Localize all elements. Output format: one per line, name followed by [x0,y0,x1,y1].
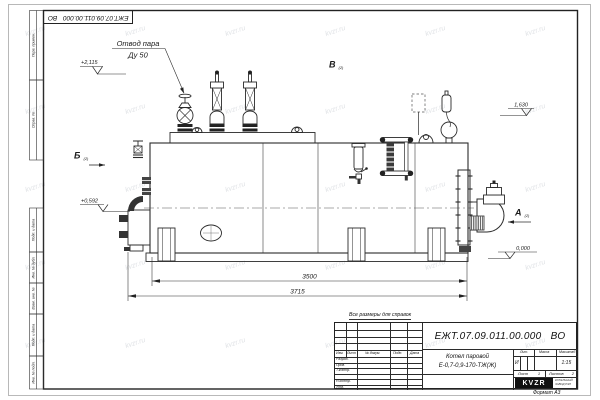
tb-col-list: Лист [347,352,356,356]
support-leg [348,228,365,261]
tb-product-line2: Е-0,7-0,9-170-ТЖ(Ж) [439,362,496,371]
support-skid [146,228,468,262]
margin-stamp-labels: Перв. примен. Справ. № Подп. и дата Инв.… [32,33,36,384]
drawing-sheet: kvzr.rukvzr.rukvzr.rukvzr.rukvzr.rukvzr.… [0,0,600,400]
tb-lbl-listov: Листов [549,371,564,376]
reference-note: Все размеры для справок [349,312,411,320]
lifting-lug [292,127,303,132]
lifting-lug [192,128,202,133]
safety-valve-2 [243,71,258,132]
view-arrow-b [89,163,105,167]
kvzr-logo-subtext: КОТЕЛЬНЫЙ ЗАВОД РЭП [555,379,578,386]
tb-product-name: Котел паровой Е-0,7-0,9-170-ТЖ(Ж) [422,349,513,374]
steam-outlet-valve [177,94,193,131]
elevation-mark-steam [80,67,126,75]
kvzr-logo-sub2: ЗАВОД РЭП [555,383,578,387]
tb-row-nkontr: Н.контр. [336,380,351,384]
view-label-b-ref: (2) [84,156,90,161]
gauge-glass [380,137,413,180]
view-label-v: В [329,60,336,70]
safety-valve-1 [210,71,225,132]
tb-sheet-number: 1 [538,371,540,376]
burner-unit [470,181,505,233]
tb-lbl-masshtab: Масштаб [559,351,575,355]
kvzr-logo: KVZR [515,378,553,388]
view-label-a: А [514,208,522,218]
elevation-mark-right [500,109,534,116]
tb-lbl-lit: Лит. [520,351,528,355]
tb-row-razrab: Разраб. [336,358,349,362]
mount-bracket [419,135,433,144]
elevation-value-left: +0,592 [81,199,98,205]
elevation-value-steam: +2,115 [81,60,99,66]
tb-product-line1: Котел паровой [446,353,489,362]
lifting-ring [441,122,457,143]
stamp-perv-primen: Перв. примен. [32,33,36,57]
water-column [349,144,368,185]
tb-doc-number: ЕЖТ.07.09.011.00.000 ВО [422,323,578,349]
steam-outlet-callout-leader [112,49,184,94]
format-note: Формат А3 [533,390,560,396]
manhole [201,225,222,241]
title-block: Изм. Лист № докум. Подп. Дата Разраб. Пр… [334,322,577,389]
smoke-box-elbow [119,196,150,251]
dimension-value-3715: 3715 [290,289,305,296]
tb-row-tkontr: Т.контр. [336,369,350,373]
stamp-sprav-no: Справ. № [32,112,36,128]
flipped-docnum-box: ЕЖТ.07.09.011.00.000 ВО [43,10,133,24]
tb-row-utv: Утв. [336,386,344,390]
view-label-b: Б [74,151,81,161]
view-label-v-ref: (2) [339,65,345,70]
tb-sheet-cell: Лист 1 [513,370,545,377]
support-leg [158,228,175,261]
elevation-value-zero: 0,000 [516,246,531,252]
stamp-podp-data-1: Подп. и дата [32,219,36,242]
view-arrow-a [508,220,531,224]
tb-lbl-massa: Масса [539,351,549,355]
stamp-podp-data-2: Подп. и дата [32,324,36,347]
tb-scale-value: 1:15 [562,361,572,366]
elevation-mark-zero [488,252,537,259]
drawing-texts: Отвод пара Ду 50 +2,115 1,630 +0,592 0,0… [74,39,531,296]
tb-litera-value: И [515,361,519,366]
tb-sheets-total: 2 [572,371,574,376]
tb-col-podp: Подп. [393,352,402,356]
tb-sheets-cell: Листов 2 [545,370,578,377]
stamp-vzam-inv: Взам. инв. № [32,287,36,309]
dimension-value-3500: 3500 [302,274,317,281]
callout-steam-line2: Ду 50 [127,51,148,60]
tb-row-prov: Пров. [336,364,345,368]
tb-col-docnum: № докум. [365,352,380,356]
flipped-docnum-text: ЕЖТ.07.09.011.00.000 ВО [48,14,129,21]
elevation-mark-left [80,205,130,212]
stamp-inv-podl: Инв. № подл. [32,361,36,383]
feed-check-valve [133,141,143,158]
tb-lbl-list: Лист [518,371,528,376]
phantom-fitting [412,94,425,135]
tb-col-data: Дата [410,352,419,356]
stamp-inv-dubl: Инв. № дубл. [32,256,36,278]
tb-col-izm: Изм. [336,352,343,356]
support-leg [428,228,445,261]
view-label-a-ref: (2) [525,213,531,218]
callout-steam-line1: Отвод пара [117,39,160,48]
boiler-body [144,133,474,254]
elevation-value-right: 1,630 [514,103,529,109]
